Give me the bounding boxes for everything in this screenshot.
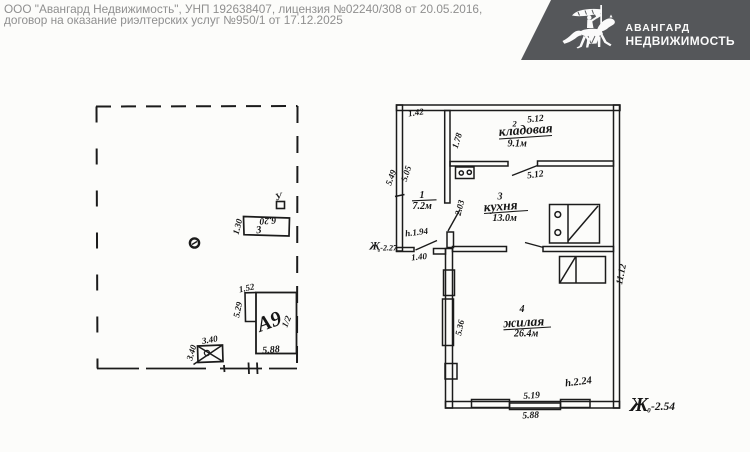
svg-text:5.12: 5.12 [527,114,545,126]
svg-text:Ж: Ж [628,394,649,416]
svg-text:6.20: 6.20 [259,215,276,226]
svg-text:5.19: 5.19 [523,391,541,402]
svg-text:договор на оказание риэлтерски: договор на оказание риэлтерских услуг №9… [4,13,343,27]
svg-text:НЕДВИЖИМОСТЬ: НЕДВИЖИМОСТЬ [626,34,736,48]
svg-text:9.1м: 9.1м [508,139,528,150]
svg-text:4: 4 [519,304,525,315]
svg-text:₀-2.54: ₀-2.54 [647,401,675,413]
svg-text:5.88: 5.88 [522,411,539,422]
svg-text:7.2м: 7.2м [413,201,433,212]
svg-text:1.40: 1.40 [411,251,428,263]
svg-text:5.88: 5.88 [262,344,280,356]
svg-text:АВАНГАРД: АВАНГАРД [626,23,691,34]
svg-text:26.4м: 26.4м [513,329,539,340]
svg-text:1: 1 [420,190,425,201]
svg-text:13.0м: 13.0м [493,213,518,224]
svg-text:₀-2.27: ₀-2.27 [378,244,398,253]
